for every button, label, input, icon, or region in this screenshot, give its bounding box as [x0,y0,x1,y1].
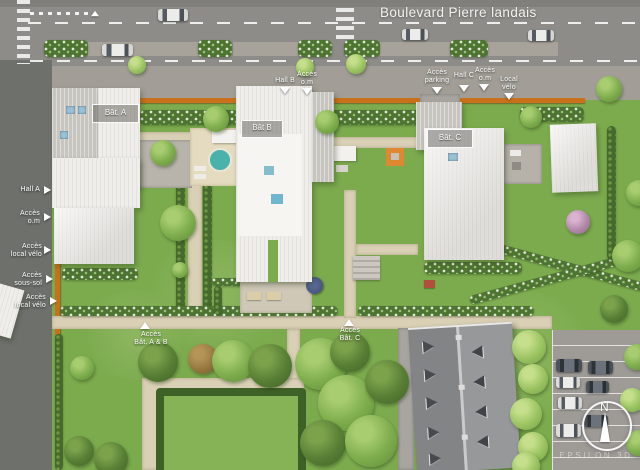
neighbour-house [550,123,598,193]
building-bat-a [52,88,100,158]
median-hedge [198,40,232,57]
picnic-table [424,280,435,288]
dormer-icon [471,346,483,359]
tree [70,356,94,380]
tree [315,110,339,134]
arrow-down-icon [479,84,489,91]
tree [612,240,640,272]
tree [510,398,542,430]
building-notch [268,240,278,282]
roof-skylight [60,131,68,139]
dormer-icon [477,435,489,448]
arrow-down-icon [504,93,514,100]
building-bat-a [52,158,140,208]
tree [566,210,590,234]
car [556,424,581,437]
lane-divider [30,60,640,62]
car [556,359,582,372]
lounger [194,166,206,171]
building-label-bat-b: Bât B [241,120,283,138]
label-local-velo: Local vélo [493,76,525,92]
car [556,377,580,388]
flower-hedge [358,306,534,316]
garden-table [336,165,348,172]
tree [172,262,188,278]
hedge-strip [607,126,616,260]
car [586,381,609,393]
crosswalk-icon [336,8,354,40]
arrow-right-icon [46,275,53,283]
tree [128,56,146,74]
chimney [462,435,468,440]
label-acces-bat-c: Accès Bât. C [325,327,375,343]
arrow-right-icon [44,186,51,194]
label-acces-sous-sol: Accès sous-sol [4,272,42,288]
watermark: EPSILON 3D [552,451,640,460]
gravel-path [344,190,356,318]
parking-bay [380,42,450,56]
car [588,361,613,374]
arrow-down-icon [302,88,312,95]
hedged-lawn-square [156,388,306,470]
building-bat-b-wing [312,92,334,182]
round-pool [208,148,232,172]
dormer-icon [426,396,438,409]
tree [94,442,128,470]
hedge-strip [214,286,222,314]
median-hedge [344,40,380,57]
roof-skylight [448,153,458,161]
arrow-up-icon [140,322,150,329]
garden-table [510,150,521,156]
tree [203,106,229,132]
arrow-down-icon [459,85,469,92]
building-bat-a [54,208,134,264]
roof-skylight [78,106,86,114]
flower-hedge [424,262,522,274]
hedge-strip [55,334,63,470]
compass-north-label: N [600,400,609,414]
median-hedge [298,40,332,57]
lounger [194,174,206,179]
tree [160,205,196,241]
dormer-icon [425,368,437,381]
label-hall-a: Hall A [8,186,40,194]
street-name: Boulevard Pierre landais [380,5,560,20]
tree [346,54,366,74]
car [402,29,428,40]
chimney [456,335,462,340]
median-hedge [450,40,488,57]
median-hedge [44,40,88,57]
road-arrow-icon [91,11,99,17]
building-bat-b [238,134,302,236]
flower-hedge [62,268,138,280]
label-acces-local-velo-lower: Accès local vélo [8,294,46,310]
tree [248,344,292,388]
lane-divider [28,22,640,24]
dormer-icon [475,405,487,418]
car [528,30,554,41]
tree [600,295,628,323]
picnic-table [247,292,261,300]
road-marking-dots [30,12,88,15]
chimney [459,385,465,390]
building-label-bat-c: Bât. C [427,129,473,148]
label-acces-local-velo-upper: Accès local vélo [4,243,42,259]
roof-pool [264,166,274,175]
dormer-icon [428,426,440,439]
tree [520,106,542,128]
side-road [0,60,52,470]
north-arrow-icon [600,412,610,442]
dormer-icon [473,375,485,388]
roof-skylight [66,106,75,114]
parking-bay [488,42,558,56]
garden-steps [353,256,380,280]
tree [138,342,178,382]
crosswalk-icon [17,0,30,64]
tree [518,364,548,394]
arrow-right-icon [50,297,57,305]
tree [345,415,397,467]
garden-table [391,153,399,160]
car [558,397,582,409]
arrow-up-icon [344,319,354,326]
arrow-right-icon [44,246,51,254]
tree [150,140,176,166]
tree [596,76,622,102]
car [158,9,188,21]
tree [512,330,546,364]
site-plan: Boulevard Pierre landais [0,0,640,470]
picnic-table [267,292,281,300]
dormer-icon [423,340,435,353]
label-acces-om-left: Accès o.m [8,210,40,226]
existing-building [408,322,521,470]
building-label-bat-a: Bât. A [92,104,139,123]
tree [365,360,409,404]
label-acces-bat-a-b: Accès Bât. A & B [116,331,186,347]
arrow-right-icon [44,213,51,221]
car [102,44,133,56]
arrow-down-icon [280,87,290,94]
arrow-down-icon [432,87,442,94]
roof-pool [271,194,283,204]
dormer-icon [430,452,442,465]
garden-table [512,162,521,170]
tree [300,420,346,466]
label-acces-om-bat-b: Accès o.m [291,71,323,87]
parking-bay [233,42,298,56]
gravel-path [356,244,418,255]
tree [64,436,94,466]
